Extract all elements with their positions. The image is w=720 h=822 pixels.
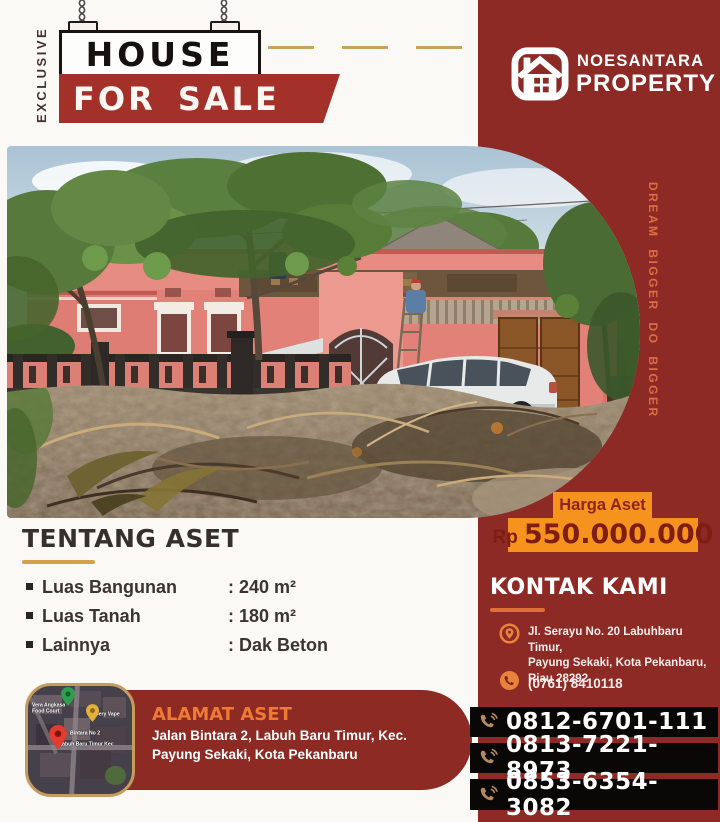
about-title: TENTANG ASET [22, 524, 239, 553]
map-thumbnail[interactable]: Vera Angkasa Food Court Dery Vape Bintar… [25, 683, 135, 797]
map-green-area [105, 766, 126, 785]
about-row-value: : Dak Beton [228, 635, 328, 656]
brand-name-line1: NOESANTARA [577, 52, 704, 71]
hotline-phone-icon [478, 748, 498, 768]
about-row-label: Luas Tanah [42, 606, 141, 627]
office-phone[interactable]: (0761) 8410118 [528, 676, 623, 691]
about-row-value: : 180 m² [228, 606, 296, 627]
about-row-label: Luas Bangunan [42, 577, 177, 598]
map-image: Vera Angkasa Food Court Dery Vape Bintar… [28, 686, 132, 794]
map-pin-gold-icon [86, 704, 99, 722]
about-underline [22, 560, 95, 564]
property-flyer: EXCLUSIVE HOUSE FOR SALE NOESANTARA PROP… [0, 0, 720, 822]
about-row: Luas Tanah : 180 m² [22, 603, 452, 632]
alamat-line: Payung Sekaki, Kota Pekanbaru [152, 747, 358, 762]
alamat-title: ALAMAT ASET [152, 704, 292, 725]
map-label: Labuh Baru Timur Kec [59, 742, 116, 748]
decorative-dashes [268, 46, 476, 49]
contact-title: KONTAK KAMI [490, 575, 668, 600]
sign-forsale-board: FOR SALE [59, 74, 340, 123]
sign-house-board: HOUSE [59, 30, 261, 78]
price-label: Harga Aset [553, 492, 652, 518]
hotline-phone-icon [478, 785, 498, 805]
price-amount: 550.000.000 [524, 518, 714, 552]
about-row-value: : 240 m² [228, 577, 296, 598]
map-pin-red-icon [49, 725, 67, 749]
price-currency: Rp [493, 521, 518, 555]
house-photo-scene [7, 146, 640, 518]
address-line: Payung Sekaki, Kota Pekanbaru, [528, 656, 718, 672]
hotline-bar[interactable]: 0853-6354-3082 [470, 779, 718, 810]
alamat-line: Jalan Bintara 2, Labuh Baru Timur, Kec. [152, 728, 407, 743]
location-pin-icon [499, 623, 520, 644]
bullet-icon [26, 641, 33, 648]
map-label: Bintara No 2 [70, 731, 105, 737]
bullet-icon [26, 612, 33, 619]
sign-title: HOUSE [86, 35, 235, 74]
about-row: Luas Bangunan : 240 m² [22, 574, 452, 603]
map-pin-green-icon [61, 687, 75, 706]
price-value: Rp 550.000.000 [508, 518, 698, 552]
contact-underline [490, 608, 545, 612]
map-block [40, 753, 71, 777]
property-photo [7, 146, 640, 518]
exclusive-label: EXCLUSIVE [34, 27, 49, 123]
address-line: Jl. Serayu No. 20 Labuhbaru Timur, [528, 625, 718, 656]
about-row: Lainnya : Dak Beton [22, 632, 452, 661]
brand-name-line2: PROPERTY [576, 70, 716, 98]
brand-house-icon [511, 45, 569, 101]
hotline-number: 0853-6354-3082 [506, 769, 718, 821]
about-list: Luas Bangunan : 240 m² Luas Tanah : 180 … [22, 574, 452, 661]
sign-subtitle: FOR SALE [73, 80, 280, 118]
hotline-phone-icon [478, 712, 498, 732]
bullet-icon [26, 583, 33, 590]
phone-icon [500, 671, 519, 690]
about-row-label: Lainnya [42, 635, 110, 656]
tagline-vertical: DREAM BIGGER DO BIGGER [646, 182, 660, 512]
